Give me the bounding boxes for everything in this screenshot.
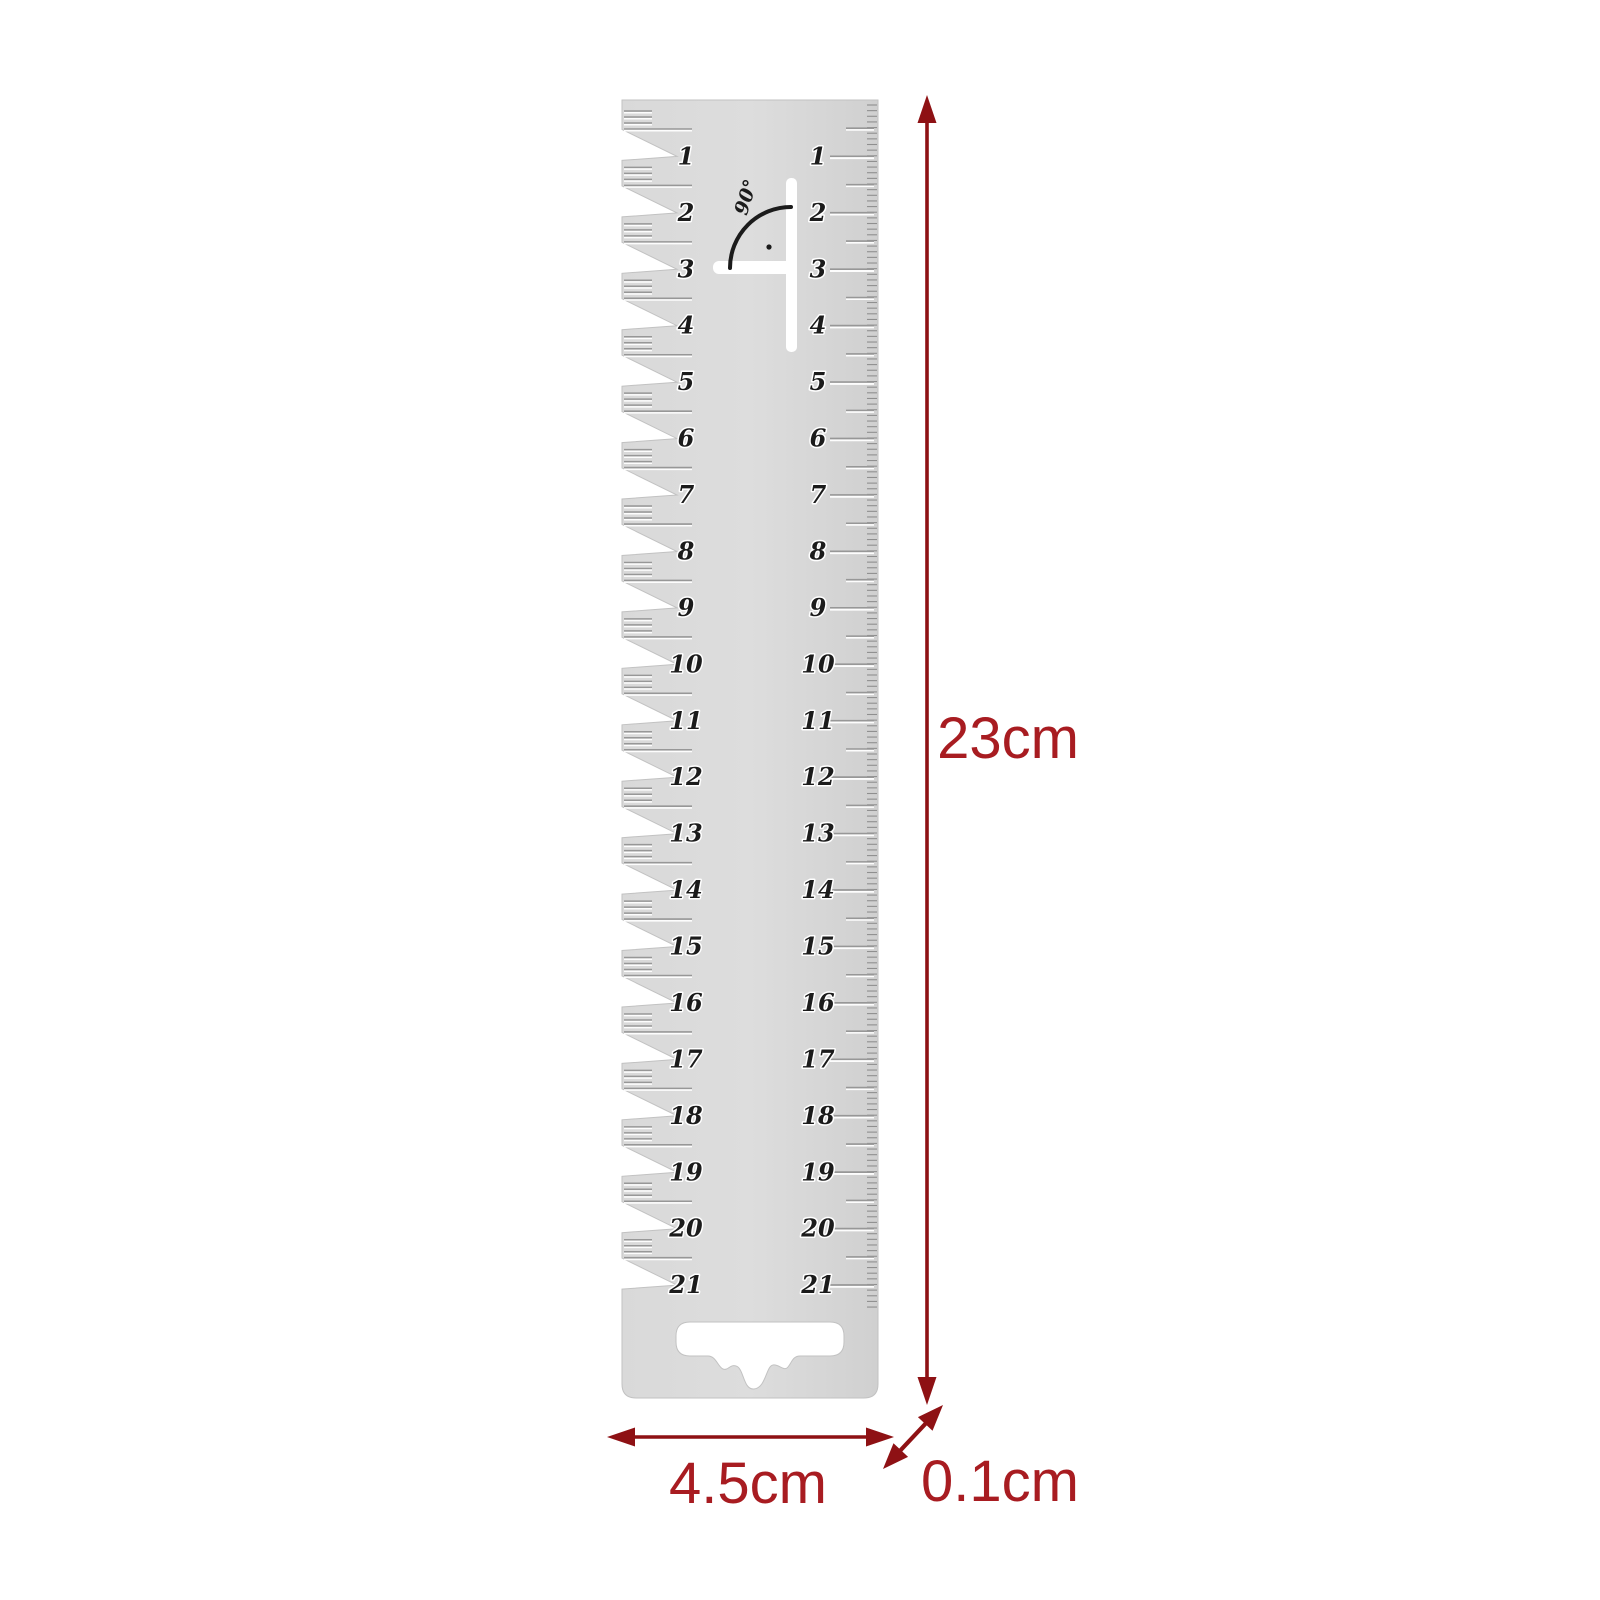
cm-number: 12 — [801, 762, 834, 791]
width-arrow — [607, 1428, 894, 1447]
cm-number: 14 — [801, 875, 834, 904]
cm-number: 7 — [810, 480, 827, 509]
width-dimension-label: 4.5cm — [669, 1451, 827, 1516]
cm-number: 21 — [800, 1270, 834, 1299]
cm-number: 8 — [677, 536, 695, 565]
cm-number: 17 — [669, 1044, 703, 1073]
cm-number: 9 — [678, 593, 695, 622]
cm-number: 9 — [810, 593, 827, 622]
cm-number: 1 — [810, 141, 827, 170]
cm-number: 18 — [669, 1101, 703, 1130]
product-photo: 123456789101112131415161718192021 123456… — [0, 0, 1600, 1600]
cm-number: 2 — [677, 198, 695, 227]
cm-number: 13 — [669, 819, 702, 848]
horizontal-slot — [713, 261, 792, 274]
cm-number: 13 — [801, 819, 834, 848]
cm-number: 16 — [801, 988, 835, 1017]
cm-number: 11 — [801, 706, 834, 735]
height-dimension-label: 23cm — [937, 706, 1079, 771]
cm-number: 6 — [678, 424, 695, 453]
cm-number: 5 — [678, 367, 695, 396]
cm-number: 10 — [801, 649, 835, 678]
cm-number: 3 — [678, 254, 695, 283]
cm-number: 6 — [810, 424, 827, 453]
cm-number: 2 — [809, 198, 827, 227]
cm-number: 12 — [669, 762, 702, 791]
thickness-dimension-label: 0.1cm — [921, 1449, 1079, 1514]
cm-number: 3 — [810, 254, 827, 283]
cm-number: 19 — [801, 1157, 835, 1186]
cm-number: 5 — [810, 367, 827, 396]
height-arrow — [918, 95, 937, 1405]
cm-number: 21 — [668, 1270, 702, 1299]
cm-number: 10 — [669, 649, 703, 678]
cm-number: 20 — [668, 1214, 703, 1243]
cm-number: 1 — [678, 141, 695, 170]
product-image-stage: 123456789101112131415161718192021 123456… — [0, 0, 1600, 1600]
angle-dot — [766, 244, 771, 249]
cm-number: 14 — [669, 875, 702, 904]
cm-number: 18 — [801, 1101, 835, 1130]
cm-number: 15 — [669, 932, 702, 961]
cm-number: 19 — [669, 1157, 703, 1186]
cm-number: 8 — [809, 536, 827, 565]
cm-number: 7 — [678, 480, 695, 509]
cm-number: 15 — [801, 932, 834, 961]
cm-number: 4 — [678, 311, 695, 340]
knitting-gauge-ruler: 123456789101112131415161718192021 123456… — [622, 100, 878, 1398]
cm-number: 11 — [669, 706, 702, 735]
cm-number: 17 — [801, 1044, 835, 1073]
cm-number: 4 — [810, 311, 827, 340]
cm-number: 20 — [800, 1214, 835, 1243]
cm-number: 16 — [669, 988, 703, 1017]
